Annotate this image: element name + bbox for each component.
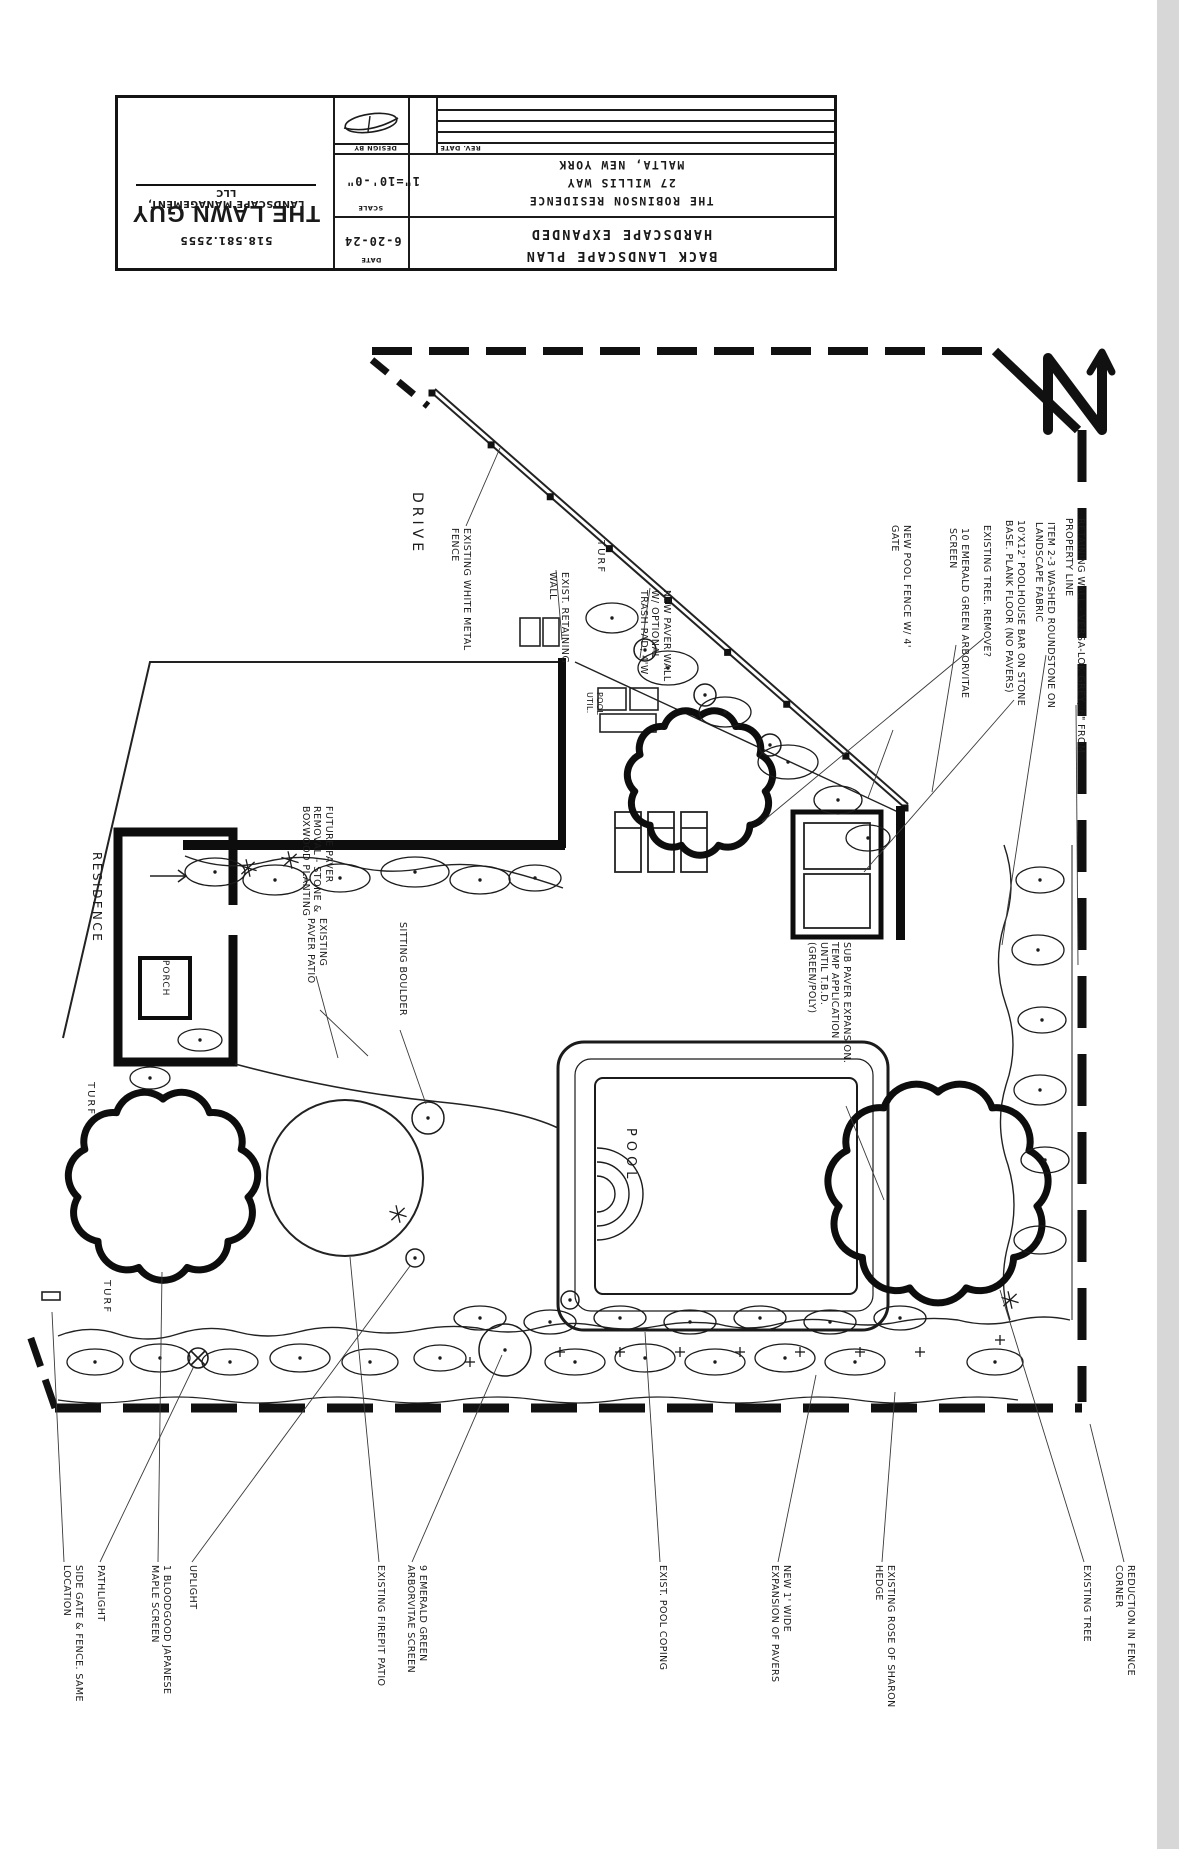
fence-post: [606, 545, 613, 552]
plan-label-new-paver-wall: NEW PAVER WALL W/ OPTIONAL TRASH PAD, 4'…: [637, 590, 672, 682]
shrub-center-dot: [413, 870, 416, 873]
plant-center-dot: [768, 743, 771, 746]
fence-post: [783, 701, 790, 708]
plan-label-residence: RESIDENCE: [89, 852, 104, 943]
plan-label-existing-white-metal-fence: EXISTING WHITE METAL FENCE: [449, 528, 472, 651]
shrub-center-dot: [758, 1316, 761, 1319]
property-line-corner: [995, 351, 1078, 430]
leader-line: [192, 1266, 410, 1562]
shrub-center-dot: [298, 1356, 301, 1359]
shrub-center-dot: [548, 1320, 551, 1323]
shrub-center-dot: [1038, 878, 1041, 881]
plan-label-pool: POOL: [622, 1128, 638, 1184]
plan-label-retaining-wall-versa-lok: RETAINING WALL - VERSA-LOK GREY, 6" FROM…: [1063, 518, 1086, 753]
plan-label-uplight: UPLIGHT: [186, 1565, 198, 1610]
leader-line: [778, 1375, 816, 1562]
shrub-center-dot: [723, 710, 726, 713]
shrub-center-dot: [1036, 948, 1039, 951]
plan-label-exist-retaining-wall: EXIST. RETAINING WALL: [547, 572, 570, 663]
shrub-center-dot: [478, 878, 481, 881]
plant-center-dot: [703, 693, 706, 696]
firepit-patio-circle: [267, 1100, 423, 1256]
plan-label-sub-paver-expansion: SUB PAVER EXPANSION. TEMP APPLICATION UN…: [806, 942, 852, 1063]
plan-label-turf-top: TURF: [594, 540, 606, 574]
wall-step: [558, 658, 566, 848]
shrub-center-dot: [783, 1356, 786, 1359]
shrub-center-dot: [618, 1316, 621, 1319]
scanned-landscape-plan-sheet: DESIGN BY REV. DATE 1"=10'-0" SCALE 6-20…: [0, 0, 1179, 1849]
fence-post: [429, 390, 436, 397]
scan-page-edge: [1157, 0, 1179, 1849]
plan-label-exist-pool-coping: EXIST. POOL COPING: [656, 1565, 668, 1670]
plan-label-future-paver-removal: FUTURE PAVER REMOVAL - STONE & BOXWOOD P…: [299, 806, 334, 916]
shrub-center-dot: [853, 1360, 856, 1363]
leader-line: [52, 1312, 64, 1562]
shrub-center-dot: [338, 876, 341, 879]
property-line-top-left-dashes: [372, 360, 428, 406]
leader-line: [1090, 1424, 1124, 1562]
shrub-center-dot: [198, 1038, 201, 1041]
shrub-center-dot: [438, 1356, 441, 1359]
shrub-center-dot: [93, 1360, 96, 1363]
shrub-center-dot: [1038, 1238, 1041, 1241]
property-line-bottom-left: [28, 1330, 55, 1408]
shrub-center-dot: [368, 1360, 371, 1363]
shrub-center-dot: [228, 1360, 231, 1363]
wall-top: [183, 840, 565, 850]
plan-label-washed-roundstone: ITEM 2-3 WASHED ROUNDSTONE ON LANDSCAPE …: [1033, 522, 1056, 708]
shrub-center-dot: [993, 1360, 996, 1363]
leader-line: [645, 1332, 660, 1562]
leader-line: [882, 1392, 895, 1562]
shrub-center-dot: [866, 836, 869, 839]
plan-label-side-gate-fence: SIDE GATE & FENCE. SAME LOCATION: [61, 1565, 84, 1702]
plan-label-new-pool-fence: NEW POOL FENCE W/ 4' GATE: [889, 525, 912, 648]
shrub-center-dot: [836, 798, 839, 801]
drive-arrow: [150, 870, 186, 882]
plan-label-existing-paver-patio: EXISTING PAVER PATIO: [305, 918, 328, 984]
shrub-center-dot: [1038, 1088, 1041, 1091]
plan-label-existing-firepit-patio: EXISTING FIREPIT PATIO: [374, 1565, 386, 1686]
leader-line: [466, 448, 500, 526]
plan-label-reduction-fence-corner: REDUCTION IN FENCE CORNER: [1113, 1565, 1136, 1676]
shrub-center-dot: [573, 1360, 576, 1363]
plan-label-porch: PORCH: [159, 960, 170, 996]
bed-edge-top: [185, 856, 563, 888]
plant-center-dot: [426, 1116, 429, 1119]
north-arrow-icon: [1048, 352, 1112, 430]
leader-line: [400, 1030, 426, 1104]
leader-line: [1000, 1290, 1084, 1562]
leader-line: [412, 1355, 502, 1562]
shrub-center-dot: [273, 878, 276, 881]
tree-canopy: [68, 1092, 257, 1280]
tree-canopy: [627, 711, 772, 855]
shrub-center-dot: [688, 1320, 691, 1323]
shrub-center-dot: [610, 616, 613, 619]
leader-line: [846, 1106, 884, 1200]
tree-canopy: [828, 1084, 1048, 1303]
pool-outline: [558, 1042, 888, 1330]
plant-center-dot: [413, 1256, 416, 1259]
plan-label-ten-emerald-green: 10 EMERALD GREEN ARBORVITAE SCREEN: [947, 528, 970, 698]
plan-label-drive: DRIVE: [408, 492, 425, 555]
fence-post: [547, 493, 554, 500]
poolhouse-bar-inner: [804, 874, 870, 928]
plan-label-existing-rose-of-sharon: EXISTING ROSE OF SHARON HEDGE: [873, 1565, 896, 1708]
leader-line: [320, 1010, 368, 1056]
plant-center-dot: [568, 1298, 571, 1301]
plan-label-bloodgood-japanese-maple: 1 BLOODGOOD JAPANESE MAPLE SCREEN: [149, 1565, 172, 1694]
shrub-center-dot: [898, 1316, 901, 1319]
ornamental-plant-icon: [389, 1205, 406, 1223]
shrub-center-dot: [533, 876, 536, 879]
plan-label-existing-tree: EXISTING TREE: [1080, 1565, 1092, 1642]
pathlight-icon: [188, 1348, 208, 1368]
plan-label-pathlight: PATHLIGHT: [94, 1565, 106, 1622]
shrub-center-dot: [478, 1316, 481, 1319]
plant-center-dot: [503, 1348, 506, 1351]
shrub-center-dot: [213, 870, 216, 873]
roundstone-bed-edge: [575, 662, 898, 812]
trash-pad: [520, 618, 540, 646]
fence-post: [488, 441, 495, 448]
plan-label-nine-emerald-green: 9 EMERALD GREEN ARBORVITAE SCREEN: [405, 1565, 428, 1673]
site-plan-drawing: [0, 0, 1179, 1849]
shrub-center-dot: [786, 760, 789, 763]
leader-line: [100, 1366, 194, 1562]
plan-label-pool-util: POOL UTIL.: [585, 692, 605, 715]
residence-outline: [118, 832, 233, 1062]
shrub-center-dot: [1043, 1158, 1046, 1161]
plan-label-poolhouse-bar: 10'X12' POOLHOUSE BAR ON STONE BASE. PLA…: [1003, 520, 1026, 706]
pool-water: [595, 1078, 857, 1294]
plan-label-new-expansion-pavers: NEW 1' WIDE EXPANSION OF PAVERS: [769, 1565, 792, 1682]
shrub-center-dot: [148, 1076, 151, 1079]
shrub-center-dot: [828, 1320, 831, 1323]
plan-label-existing-tree-remove: EXISTING TREE. REMOVE?: [980, 525, 992, 657]
poolhouse-bar-inner: [804, 823, 870, 869]
leader-line: [158, 1272, 162, 1562]
side-gate: [42, 1292, 60, 1300]
bed-edge-bottom-lower: [58, 1397, 1018, 1403]
fence-post: [724, 649, 731, 656]
plan-label-turf-bottom: TURF: [100, 1280, 112, 1314]
plan-label-sitting-boulder: SITTING BOULDER: [396, 922, 408, 1016]
plan-label-turf-mid: TURF: [84, 1082, 96, 1116]
fence-post: [842, 753, 849, 760]
shrub-center-dot: [713, 1360, 716, 1363]
shrub-center-dot: [1040, 1018, 1043, 1021]
